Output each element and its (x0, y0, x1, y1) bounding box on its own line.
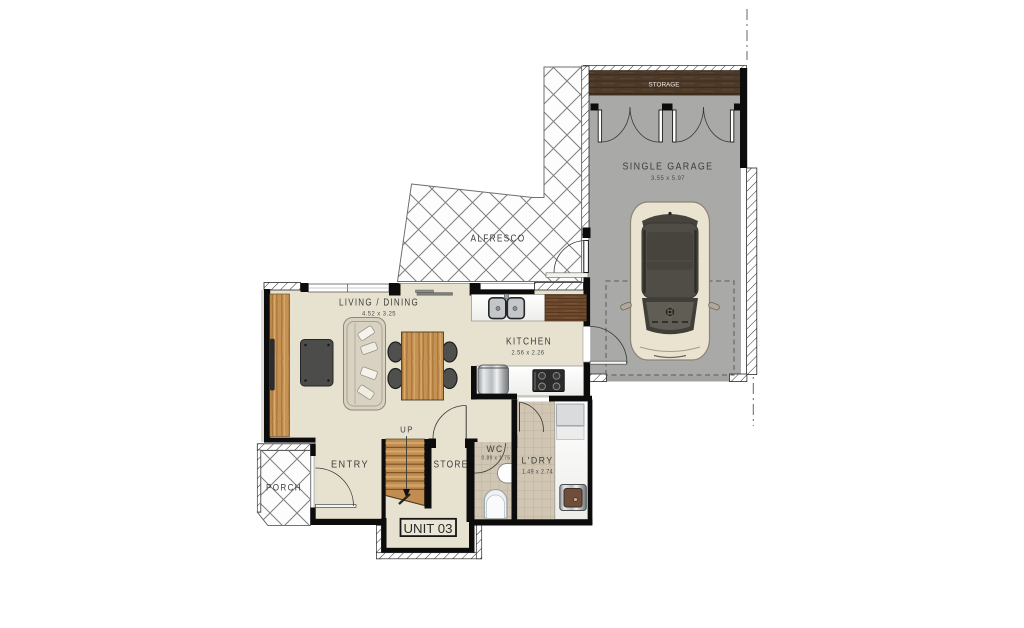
svg-text:STORE: STORE (434, 460, 469, 471)
svg-text:L'DRY: L'DRY (522, 456, 554, 467)
svg-text:KITCHEN: KITCHEN (506, 337, 552, 348)
svg-text:4.52 x 3.25: 4.52 x 3.25 (362, 311, 396, 318)
svg-text:SINGLE GARAGE: SINGLE GARAGE (623, 162, 714, 173)
svg-text:0.89 x 1.75: 0.89 x 1.75 (482, 456, 511, 462)
svg-text:UP: UP (400, 426, 414, 435)
svg-text:LIVING / DINING: LIVING / DINING (339, 298, 419, 309)
svg-text:PORCH: PORCH (266, 483, 302, 493)
svg-text:1.49 x 2.74: 1.49 x 2.74 (522, 470, 553, 476)
svg-text:3.55 x 5.97: 3.55 x 5.97 (651, 175, 685, 182)
svg-text:STORAGE: STORAGE (649, 82, 681, 89)
svg-text:2.56 x 2.26: 2.56 x 2.26 (512, 350, 545, 357)
svg-text:ENTRY: ENTRY (331, 460, 369, 471)
svg-text:WC: WC (487, 444, 504, 455)
svg-text:ALFRESCO: ALFRESCO (471, 234, 526, 245)
svg-text:UNIT 03: UNIT 03 (404, 521, 453, 536)
